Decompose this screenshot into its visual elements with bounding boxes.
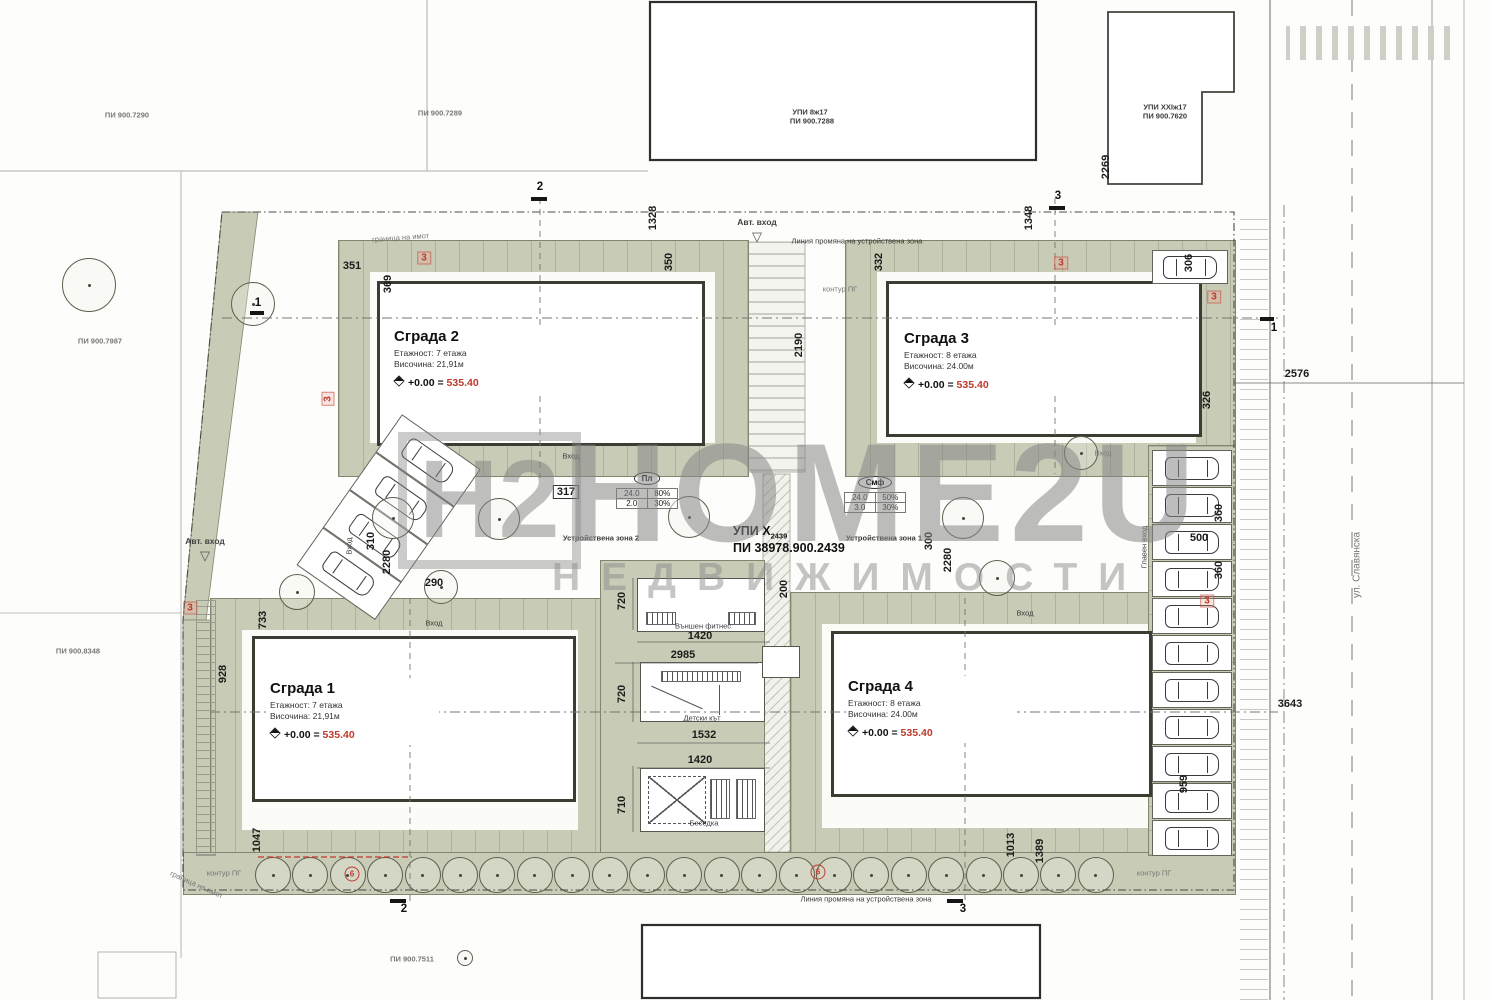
parcel-label: ПИ 900.8348 — [56, 647, 100, 656]
street-name-label: ул. Славянска — [1352, 532, 1363, 598]
playground-equipment-icon — [661, 671, 741, 682]
auto-entrance-top-label: Авт. вход — [737, 217, 777, 227]
tree-center-dot — [945, 874, 948, 877]
parking-stall — [1152, 598, 1232, 634]
building-1-label: Сграда 1 Етажност: 7 етажа Височина: 21,… — [268, 678, 439, 745]
site-identifier: УПИ X2439 ПИ 38978.900.2439 — [733, 524, 845, 555]
zone-value: 24.0 — [617, 489, 647, 498]
elevation-value: 535.40 — [957, 379, 989, 391]
section-tick — [531, 197, 547, 201]
gazebo-icon — [648, 776, 706, 824]
building-name: Сграда 2 — [394, 328, 559, 345]
tree-icon — [942, 497, 984, 539]
fitness-equipment-icon — [728, 612, 756, 625]
tree-center-dot — [571, 874, 574, 877]
tree-center-dot — [870, 874, 873, 877]
tree-center-dot — [758, 874, 761, 877]
tree-icon — [442, 857, 478, 893]
car-icon — [1165, 827, 1219, 850]
building-floors: Етажност: 8 етажа — [848, 698, 1013, 709]
dim-label: 2576 — [1285, 368, 1309, 380]
entrance-label: Вход — [1095, 449, 1112, 458]
car-icon — [1165, 790, 1219, 813]
building-elevation: +0.00 = 535.40 — [904, 378, 1069, 391]
sidewalk-hatch — [1240, 210, 1268, 1000]
zone-value: 24.0 — [845, 493, 875, 502]
tree-icon — [62, 258, 116, 312]
dim-label: 310 — [365, 532, 377, 550]
zone-value: 80% — [647, 489, 678, 498]
tree-icon — [478, 498, 520, 540]
tree-icon — [704, 857, 740, 893]
parcel-label: ПИ 900.7288 — [790, 117, 834, 126]
tree-center-dot — [982, 874, 985, 877]
red-circle-marker: 6 — [345, 867, 360, 882]
auto-entrance-left-label: Авт. вход — [185, 536, 225, 546]
dim-label: 306 — [1183, 254, 1195, 272]
elevation-label: +0.00 = — [862, 727, 898, 739]
main-entrance-label: Главен вход — [1140, 526, 1149, 569]
tree-center-dot — [962, 517, 965, 520]
tree-center-dot — [496, 874, 499, 877]
gazebo-label: Беседка — [690, 819, 719, 828]
building-floors: Етажност: 8 етажа — [904, 350, 1069, 361]
section-marker-1-left: 1 — [255, 297, 261, 309]
parcel-label: ПИ 900.7511 — [390, 955, 434, 964]
zone-value: 50% — [875, 493, 906, 502]
dim-label: 369 — [382, 275, 394, 293]
building-height: Височина: 24.00м — [904, 361, 1069, 372]
zone-table-pl: Пл 24.080% 2.030% — [616, 468, 678, 509]
parcel-label: ПИ 900.7289 — [418, 109, 462, 118]
dim-label: 326 — [1201, 391, 1213, 409]
pg-contour-label: контур ПГ — [1137, 869, 1172, 878]
tree-icon — [928, 857, 964, 893]
parking-stall — [1152, 746, 1232, 782]
tree-center-dot — [498, 518, 501, 521]
section-tick — [390, 899, 406, 903]
bench-icon — [710, 779, 730, 819]
dim-label: 1532 — [692, 729, 716, 741]
elevation-label: +0.00 = — [408, 377, 444, 389]
benchmark-icon — [269, 727, 280, 738]
car-icon — [1165, 568, 1219, 591]
playground-slide-icon — [651, 686, 703, 710]
tree-icon — [779, 857, 815, 893]
dim-label: 500 — [1190, 532, 1208, 544]
tree-center-dot — [646, 874, 649, 877]
benchmark-icon — [393, 375, 404, 386]
section-tick — [250, 311, 264, 315]
section-marker-3-top: 3 — [1055, 190, 1061, 202]
parking-stall — [1152, 820, 1232, 856]
parcel-label: ПИ 900.7987 — [78, 337, 122, 346]
car-icon — [1165, 716, 1219, 739]
red-zone-marker: 3 — [322, 392, 335, 406]
dim-label: 928 — [217, 665, 229, 683]
elevation-label: +0.00 = — [284, 729, 320, 741]
zone-change-line-label: Линия промяна на устройствена зона — [801, 895, 932, 904]
dim-label: 2280 — [381, 550, 393, 574]
elevation-value: 535.40 — [447, 377, 479, 389]
playground-pole-icon — [719, 685, 720, 715]
parcel-label: УПИ XXIж17 — [1143, 103, 1186, 112]
entrance-arrow-icon: ▽ — [752, 229, 762, 245]
parking-stall — [1152, 635, 1232, 671]
parcel-label: ПИ 900.7290 — [105, 111, 149, 120]
tree-icon — [457, 950, 473, 966]
zone1-label: Устройствена зона 1 — [846, 534, 922, 543]
building-floors: Етажност: 7 етажа — [270, 700, 435, 711]
tree-center-dot — [720, 874, 723, 877]
building-elevation: +0.00 = 535.40 — [394, 376, 559, 389]
dim-label: 360 — [1213, 561, 1225, 579]
dim-label: 351 — [343, 260, 361, 272]
tree-icon — [592, 857, 628, 893]
tree-icon — [231, 282, 275, 326]
red-circle-marker: 6 — [811, 865, 826, 880]
section-tick — [947, 899, 963, 903]
elevation-value: 535.40 — [901, 727, 933, 739]
entrance-label: Вход — [345, 538, 354, 555]
building-elevation: +0.00 = 535.40 — [848, 726, 1013, 739]
street-linework — [1270, 0, 1464, 1000]
dim-label: 2985 — [671, 649, 695, 661]
entrance-label: Вход — [563, 452, 580, 461]
tree-center-dot — [795, 874, 798, 877]
red-zone-marker: 3 — [1207, 291, 1221, 304]
dim-label: 350 — [663, 253, 675, 271]
tree-center-dot — [683, 874, 686, 877]
tree-center-dot — [1094, 874, 1097, 877]
tree-icon — [629, 857, 665, 893]
tree-center-dot — [533, 874, 536, 877]
zone-code: Смф — [858, 476, 893, 489]
red-zone-marker: 3 — [1200, 595, 1214, 608]
zone-value: 30% — [875, 503, 906, 512]
car-icon — [1165, 494, 1219, 517]
building-height: Височина: 24.00м — [848, 709, 1013, 720]
dim-label: 290 — [425, 577, 443, 589]
tree-center-dot — [421, 874, 424, 877]
tree-icon — [517, 857, 553, 893]
dim-label: 1013 — [1005, 833, 1017, 857]
entrance-label: Вход — [426, 619, 443, 628]
zone-change-line-label: Линия промяна на устройствена зона — [792, 237, 923, 246]
entrance-label: Вход — [1017, 609, 1034, 618]
parcel-label: ПИ 900.7620 — [1143, 112, 1187, 121]
dim-label: 2190 — [793, 333, 805, 357]
dim-label: 733 — [257, 611, 269, 629]
site-upi-sub: 2439 — [771, 532, 788, 541]
stair-hatch-strip — [196, 600, 216, 856]
dim-label: 360 — [1213, 504, 1225, 522]
zone2-label: Устройствена зона 2 — [563, 534, 639, 543]
dim-label: 720 — [616, 592, 628, 610]
tree-icon — [279, 574, 315, 610]
bench-icon — [736, 779, 756, 819]
building-height: Височина: 21,91м — [270, 711, 435, 722]
section-marker-1-right: 1 — [1271, 322, 1277, 334]
tree-center-dot — [996, 577, 999, 580]
elevation-label: +0.00 = — [918, 379, 954, 391]
tree-center-dot — [688, 516, 691, 519]
tree-icon — [966, 857, 1002, 893]
tree-icon — [554, 857, 590, 893]
tree-icon — [372, 497, 414, 539]
tree-icon — [979, 560, 1015, 596]
red-zone-marker: 3 — [417, 252, 431, 265]
section-marker-2-bottom: 2 — [401, 903, 407, 915]
parking-stall — [1152, 783, 1232, 819]
zone-value: 2.0 — [617, 499, 647, 508]
dim-label: 200 — [778, 580, 790, 598]
tree-icon — [255, 857, 291, 893]
benchmark-icon — [903, 377, 914, 388]
tree-center-dot — [272, 874, 275, 877]
dim-label: 1420 — [688, 754, 712, 766]
tree-center-dot — [296, 591, 299, 594]
building-name: Сграда 4 — [848, 678, 1013, 695]
parking-stall — [1152, 672, 1232, 708]
playground-label: Детски кът — [683, 714, 720, 723]
entrance-arrow-icon: ▽ — [200, 548, 210, 564]
section-marker-3-bottom: 3 — [960, 903, 966, 915]
building-name: Сграда 1 — [270, 680, 435, 697]
dim-label: 317 — [553, 485, 579, 499]
site-upi: УПИ X — [733, 524, 771, 538]
red-zone-marker: 3 — [183, 602, 197, 615]
dim-label: 1348 — [1023, 206, 1035, 230]
building-elevation: +0.00 = 535.40 — [270, 728, 435, 741]
building-4-label: Сграда 4 Етажност: 8 етажа Височина: 24.… — [846, 676, 1017, 743]
building-floors: Етажност: 7 етажа — [394, 348, 559, 359]
site-plan-drawing: Сграда 2 Етажност: 7 етажа Височина: 21,… — [0, 0, 1491, 1000]
car-icon — [1165, 457, 1219, 480]
parcel-label: УПИ 8ж17 — [792, 108, 827, 117]
tree-icon — [891, 857, 927, 893]
benchmark-icon — [847, 725, 858, 736]
car-icon — [1165, 605, 1219, 628]
tree-center-dot — [88, 284, 91, 287]
car-icon — [1165, 753, 1219, 776]
tree-icon — [367, 857, 403, 893]
car-icon — [1165, 642, 1219, 665]
parking-stall — [1152, 709, 1232, 745]
section-tick — [1260, 317, 1274, 321]
tree-center-dot — [833, 874, 836, 877]
tree-center-dot — [464, 957, 467, 960]
car-icon — [1165, 679, 1219, 702]
dim-label: 2269 — [1100, 155, 1112, 179]
building-3-label: Сграда 3 Етажност: 8 етажа Височина: 24.… — [902, 328, 1073, 395]
parking-stall — [1152, 450, 1232, 486]
dim-label: 720 — [616, 685, 628, 703]
building-height: Височина: 21,91м — [394, 359, 559, 370]
tree-center-dot — [1020, 874, 1023, 877]
zone-code: Пл — [634, 472, 661, 485]
dim-label: 332 — [873, 253, 885, 271]
tree-center-dot — [1080, 452, 1083, 455]
tree-icon — [1078, 857, 1114, 893]
dim-label: 1328 — [647, 206, 659, 230]
building-name: Сграда 3 — [904, 330, 1069, 347]
fitness-equipment-icon — [646, 612, 676, 625]
tree-center-dot — [1057, 874, 1060, 877]
tree-center-dot — [384, 874, 387, 877]
pg-contour-label: контур ПГ — [207, 869, 242, 878]
dim-label: 1047 — [251, 828, 263, 852]
dim-label: 959 — [1178, 775, 1190, 793]
building-2-label: Сграда 2 Етажност: 7 етажа Височина: 21,… — [392, 326, 563, 393]
dim-label: 710 — [616, 796, 628, 814]
dim-label: 3643 — [1278, 698, 1302, 710]
pg-contour-label: контур ПГ — [823, 285, 858, 294]
tree-center-dot — [459, 874, 462, 877]
elevation-value: 535.40 — [323, 729, 355, 741]
tree-center-dot — [608, 874, 611, 877]
dim-label: 300 — [923, 532, 935, 550]
tree-icon — [1064, 436, 1098, 470]
red-zone-marker: 3 — [1054, 257, 1068, 270]
dim-label: 2280 — [942, 548, 954, 572]
tree-icon — [405, 857, 441, 893]
dim-label: 1420 — [688, 630, 712, 642]
site-pi: ПИ 38978.900.2439 — [733, 541, 845, 555]
tree-center-dot — [309, 874, 312, 877]
small-shed — [762, 646, 800, 678]
tree-center-dot — [907, 874, 910, 877]
section-marker-2-top: 2 — [537, 181, 543, 193]
tree-icon — [741, 857, 777, 893]
tree-center-dot — [392, 517, 395, 520]
zone-table-smf: Смф 24.050% 3.030% — [844, 472, 906, 513]
zone-value: 3.0 — [845, 503, 875, 512]
zone-value: 30% — [647, 499, 678, 508]
dim-label: 1389 — [1034, 839, 1046, 863]
section-tick — [1049, 206, 1065, 210]
